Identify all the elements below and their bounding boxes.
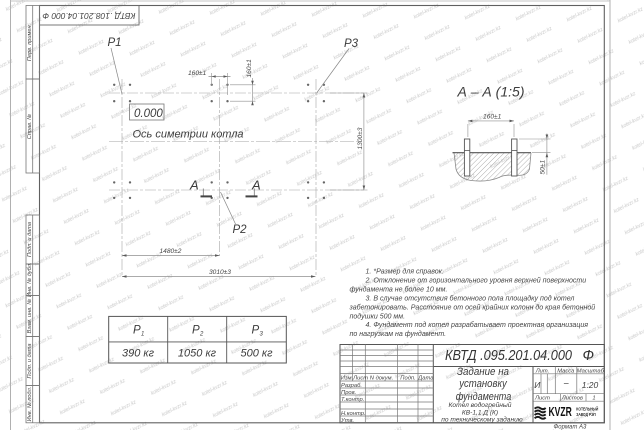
svg-text:Перв. примен.: Перв. примен. [27, 24, 33, 61]
svg-text:P2: P2 [233, 224, 248, 236]
svg-text:1: 1 [592, 396, 595, 402]
svg-text:Масса: Масса [557, 368, 575, 374]
svg-text:P: P [252, 325, 260, 337]
svg-text:Разраб.: Разраб. [341, 383, 362, 389]
svg-text:2: 2 [199, 332, 204, 338]
svg-text:Утв.: Утв. [340, 418, 354, 424]
svg-text:Н.контр.: Н.контр. [341, 411, 366, 417]
svg-text:4. Фундамент под котел разраб: 4. Фундамент под котел разрабатывает про… [366, 321, 589, 329]
svg-text:P: P [133, 325, 141, 337]
svg-text:0.000: 0.000 [134, 108, 163, 120]
svg-text:Лит.: Лит. [535, 368, 550, 374]
svg-text:KVZR: KVZR [549, 404, 573, 419]
svg-text:160±1: 160±1 [483, 114, 502, 121]
svg-text:Масштаб: Масштаб [577, 368, 605, 374]
svg-text:Инв. № дубл.: Инв. № дубл. [27, 263, 33, 297]
svg-text:P: P [192, 325, 200, 337]
svg-text:–: – [563, 378, 569, 388]
svg-text:Ф: Ф [583, 348, 595, 364]
svg-text:Формат А3: Формат А3 [554, 425, 587, 430]
svg-text:И: И [534, 380, 541, 390]
svg-text:ЗАВОД РЭП: ЗАВОД РЭП [576, 412, 596, 417]
svg-text:Инв. № подл.: Инв. № подл. [27, 387, 33, 422]
svg-text:1. *Размер для справок.: 1. *Размер для справок. [366, 268, 444, 276]
svg-text:установку: установку [458, 378, 508, 390]
svg-text:А: А [189, 178, 199, 193]
svg-text:по техническому заданию: по техническому заданию [441, 415, 523, 423]
svg-text:P3: P3 [344, 38, 359, 50]
svg-text:Справ. №: Справ. № [27, 114, 33, 139]
svg-text:1300±3: 1300±3 [357, 127, 364, 149]
svg-text:Листов: Листов [561, 396, 583, 402]
svg-text:1480±2: 1480±2 [160, 248, 182, 255]
svg-text:А: А [251, 178, 261, 193]
svg-text:160±1: 160±1 [246, 59, 253, 78]
svg-text:500 кг: 500 кг [240, 348, 273, 360]
svg-text:КОТЕЛЬНЫЙ: КОТЕЛЬНЫЙ [576, 404, 598, 411]
svg-text:Подп.: Подп. [400, 376, 415, 382]
svg-text:Лист: Лист [534, 396, 550, 402]
svg-text:Котел водогрейный: Котел водогрейный [449, 401, 512, 409]
svg-text:Т.контр.: Т.контр. [341, 397, 364, 403]
svg-text:КВТД .108.201.04.000 Ф: КВТД .108.201.04.000 Ф [42, 11, 136, 20]
svg-text:Ось симетрии котла: Ось симетрии котла [133, 129, 244, 141]
svg-text:Подп. и дата: Подп. и дата [27, 343, 33, 378]
svg-text:P1: P1 [108, 37, 122, 49]
svg-text:1050 кг: 1050 кг [178, 348, 217, 360]
svg-text:Изм.Лист: Изм.Лист [341, 376, 368, 382]
svg-text:Взам. инв. №: Взам. инв. № [27, 299, 33, 334]
svg-text:А – А (1:5): А – А (1:5) [456, 85, 524, 100]
svg-text:50±1: 50±1 [540, 160, 547, 175]
svg-text:3010±3: 3010±3 [209, 269, 231, 276]
svg-text:КВТД .095.201.04.000: КВТД .095.201.04.000 [445, 348, 572, 364]
svg-text:390 кг: 390 кг [122, 348, 155, 360]
svg-text:забетонировать. Расстояние от: забетонировать. Расстояние от осей крайн… [349, 304, 596, 312]
svg-text:160±1: 160±1 [188, 70, 207, 77]
svg-text:1: 1 [141, 332, 144, 338]
svg-text:Пров.: Пров. [341, 390, 356, 396]
svg-text:3. В случае отсутствия бетонн: 3. В случае отсутствия бетонного пола пл… [366, 295, 575, 303]
svg-text:Задание на: Задание на [457, 366, 509, 378]
svg-text:фундамента: фундамента [456, 391, 512, 403]
svg-text:подушки 500 мм.: подушки 500 мм. [350, 312, 406, 320]
svg-text:2. Отклонение от горизонтальн: 2. Отклонение от горизонтального уровня … [365, 277, 587, 285]
svg-text:Дата: Дата [417, 376, 434, 382]
svg-text:фундамента не более 10 мм.: фундамента не более 10 мм. [350, 286, 448, 294]
svg-text:1:20: 1:20 [582, 380, 599, 390]
svg-text:Подп. и дата: Подп. и дата [27, 222, 33, 257]
svg-text:по нагрузкам на фундамент.: по нагрузкам на фундамент. [350, 330, 447, 338]
svg-text:N докум.: N докум. [370, 376, 393, 382]
